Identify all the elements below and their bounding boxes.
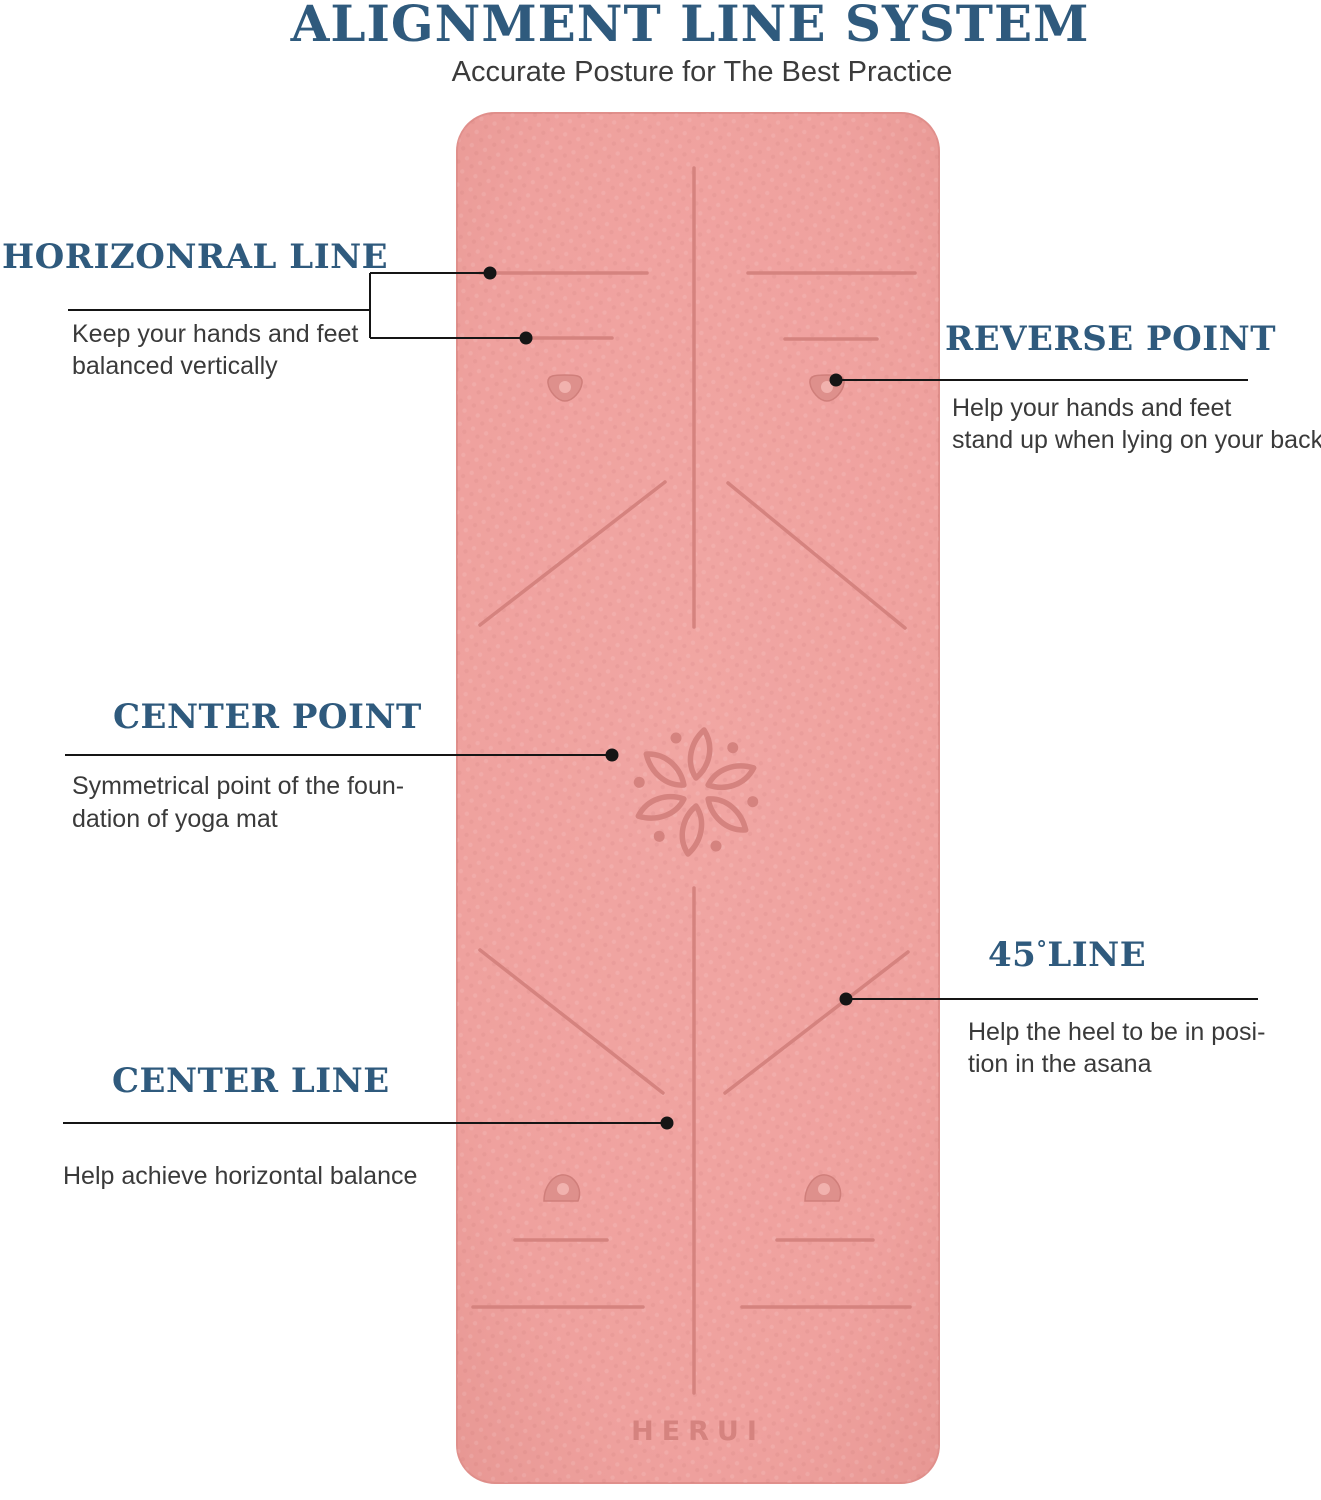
label-45-line-desc-line2: tion in the asana <box>968 1048 1265 1080</box>
label-reverse-point-desc-line1: Help your hands and feet <box>952 392 1321 424</box>
yoga-mat <box>457 113 939 1483</box>
label-reverse-point-heading: REVERSE POINT <box>945 322 1276 358</box>
leader-dot-reverse-point <box>830 374 843 387</box>
label-45-line-desc-line1: Help the heel to be in posi- <box>968 1016 1265 1048</box>
label-center-line-desc: Help achieve horizontal balance <box>63 1160 417 1192</box>
label-horizontal-line-heading: HORIZONRAL LINE <box>2 240 388 276</box>
label-center-point-heading: CENTER POINT <box>113 700 422 736</box>
label-horizontal-line-desc-line2: balanced vertically <box>72 350 358 382</box>
page-subtitle: Accurate Posture for The Best Practice <box>452 56 953 89</box>
degree-symbol: ° <box>1036 938 1047 960</box>
alignment-line-system-infographic: HERUI ALIGNMENT LINE SYSTEM Accurate Pos… <box>0 0 1321 1500</box>
brand-logo: HERUI <box>631 1416 765 1447</box>
label-horizontal-line-desc-line1: Keep your hands and feet <box>72 318 358 350</box>
label-reverse-point-desc: Help your hands and feet stand up when l… <box>952 392 1321 456</box>
leader-dot-45-line <box>840 993 853 1006</box>
label-center-point-desc: Symmetrical point of the foun- dation of… <box>72 770 404 836</box>
label-center-point-desc-line1: Symmetrical point of the foun- <box>72 770 404 803</box>
leader-dot-center-point <box>606 749 619 762</box>
label-45-word: LINE <box>1047 935 1146 975</box>
label-45-line-heading: 45°LINE <box>988 938 1146 974</box>
leader-dot-horizontal-top <box>484 267 497 280</box>
label-45-line-desc: Help the heel to be in posi- tion in the… <box>968 1016 1265 1080</box>
leader-dot-center-line <box>661 1117 674 1130</box>
label-center-line-heading: CENTER LINE <box>112 1064 390 1100</box>
label-45-num: 45 <box>988 935 1036 975</box>
page-title: ALIGNMENT LINE SYSTEM <box>291 0 1090 53</box>
label-horizontal-line-desc: Keep your hands and feet balanced vertic… <box>72 318 358 382</box>
leader-dot-horizontal-bottom <box>520 332 533 345</box>
label-reverse-point-desc-line2: stand up when lying on your back <box>952 424 1321 456</box>
yoga-mat-texture <box>457 113 939 1483</box>
diagram-canvas: HERUI <box>0 0 1321 1500</box>
label-center-point-desc-line2: dation of yoga mat <box>72 803 404 836</box>
